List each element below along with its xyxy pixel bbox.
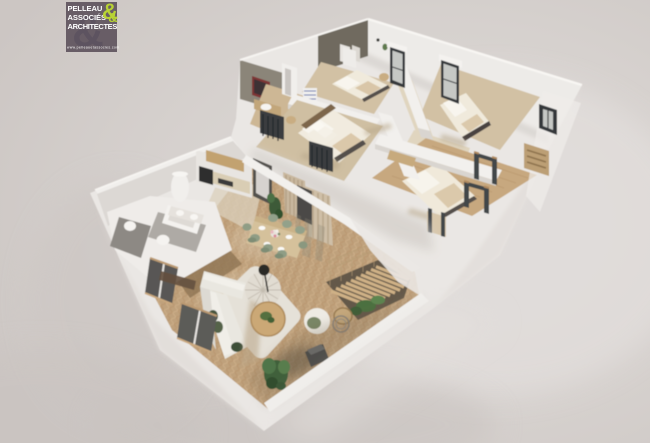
svg-text:PELLEAU: PELLEAU — [68, 4, 103, 13]
svg-text:www.pelleauetassocies.com: www.pelleauetassocies.com — [67, 46, 119, 50]
svg-text:&: & — [108, 10, 117, 25]
svg-text:ASSOCIÉS: ASSOCIÉS — [68, 13, 106, 22]
